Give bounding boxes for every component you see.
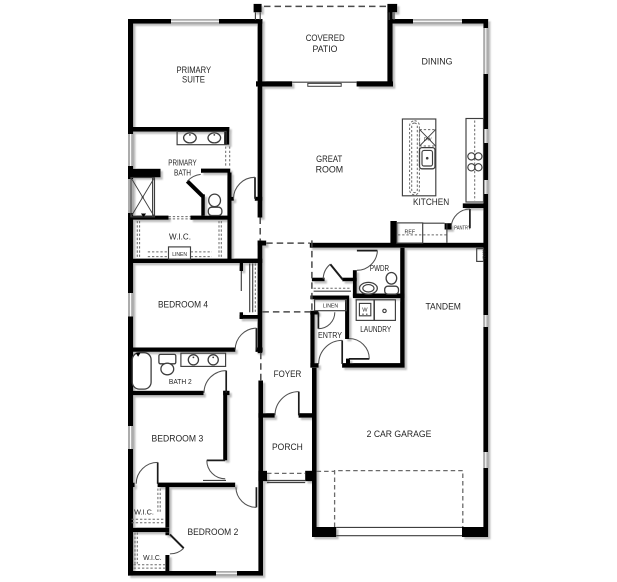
svg-text:BATH 2: BATH 2 [169, 377, 192, 386]
svg-text:PORCH: PORCH [272, 442, 303, 453]
svg-text:PRIMARY: PRIMARY [168, 158, 197, 168]
svg-text:COVERED: COVERED [306, 33, 345, 44]
svg-text:LAUNDRY: LAUNDRY [360, 324, 391, 334]
svg-text:BEDROOM 4: BEDROOM 4 [158, 300, 209, 311]
svg-text:W: W [362, 308, 368, 314]
svg-text:W.I.C.: W.I.C. [143, 553, 162, 562]
svg-text:PANTRY: PANTRY [454, 226, 471, 232]
svg-text:DINING: DINING [422, 56, 453, 67]
svg-text:REF: REF [405, 229, 416, 235]
svg-text:TANDEM: TANDEM [425, 301, 461, 312]
svg-text:ROOM: ROOM [316, 165, 344, 176]
svg-text:PATIO: PATIO [313, 44, 338, 55]
svg-text:LINEN: LINEN [172, 252, 187, 258]
svg-text:DW: DW [424, 136, 433, 141]
svg-text:PWDR: PWDR [370, 263, 389, 273]
svg-text:2 CAR GARAGE: 2 CAR GARAGE [367, 429, 432, 440]
svg-text:KITCHEN: KITCHEN [413, 197, 449, 208]
svg-text:ENTRY: ENTRY [318, 330, 342, 340]
svg-text:W.I.C.: W.I.C. [169, 232, 191, 242]
svg-text:LINEN: LINEN [323, 304, 338, 310]
svg-text:BEDROOM 3: BEDROOM 3 [152, 434, 204, 445]
svg-text:BATH: BATH [174, 167, 191, 177]
svg-text:W.I.C.: W.I.C. [134, 507, 154, 516]
svg-text:BEDROOM 2: BEDROOM 2 [188, 527, 239, 538]
svg-text:FOYER: FOYER [274, 369, 302, 380]
svg-text:GREAT: GREAT [316, 154, 342, 165]
svg-text:SUITE: SUITE [182, 75, 205, 86]
svg-text:W/M: W/M [481, 250, 486, 260]
